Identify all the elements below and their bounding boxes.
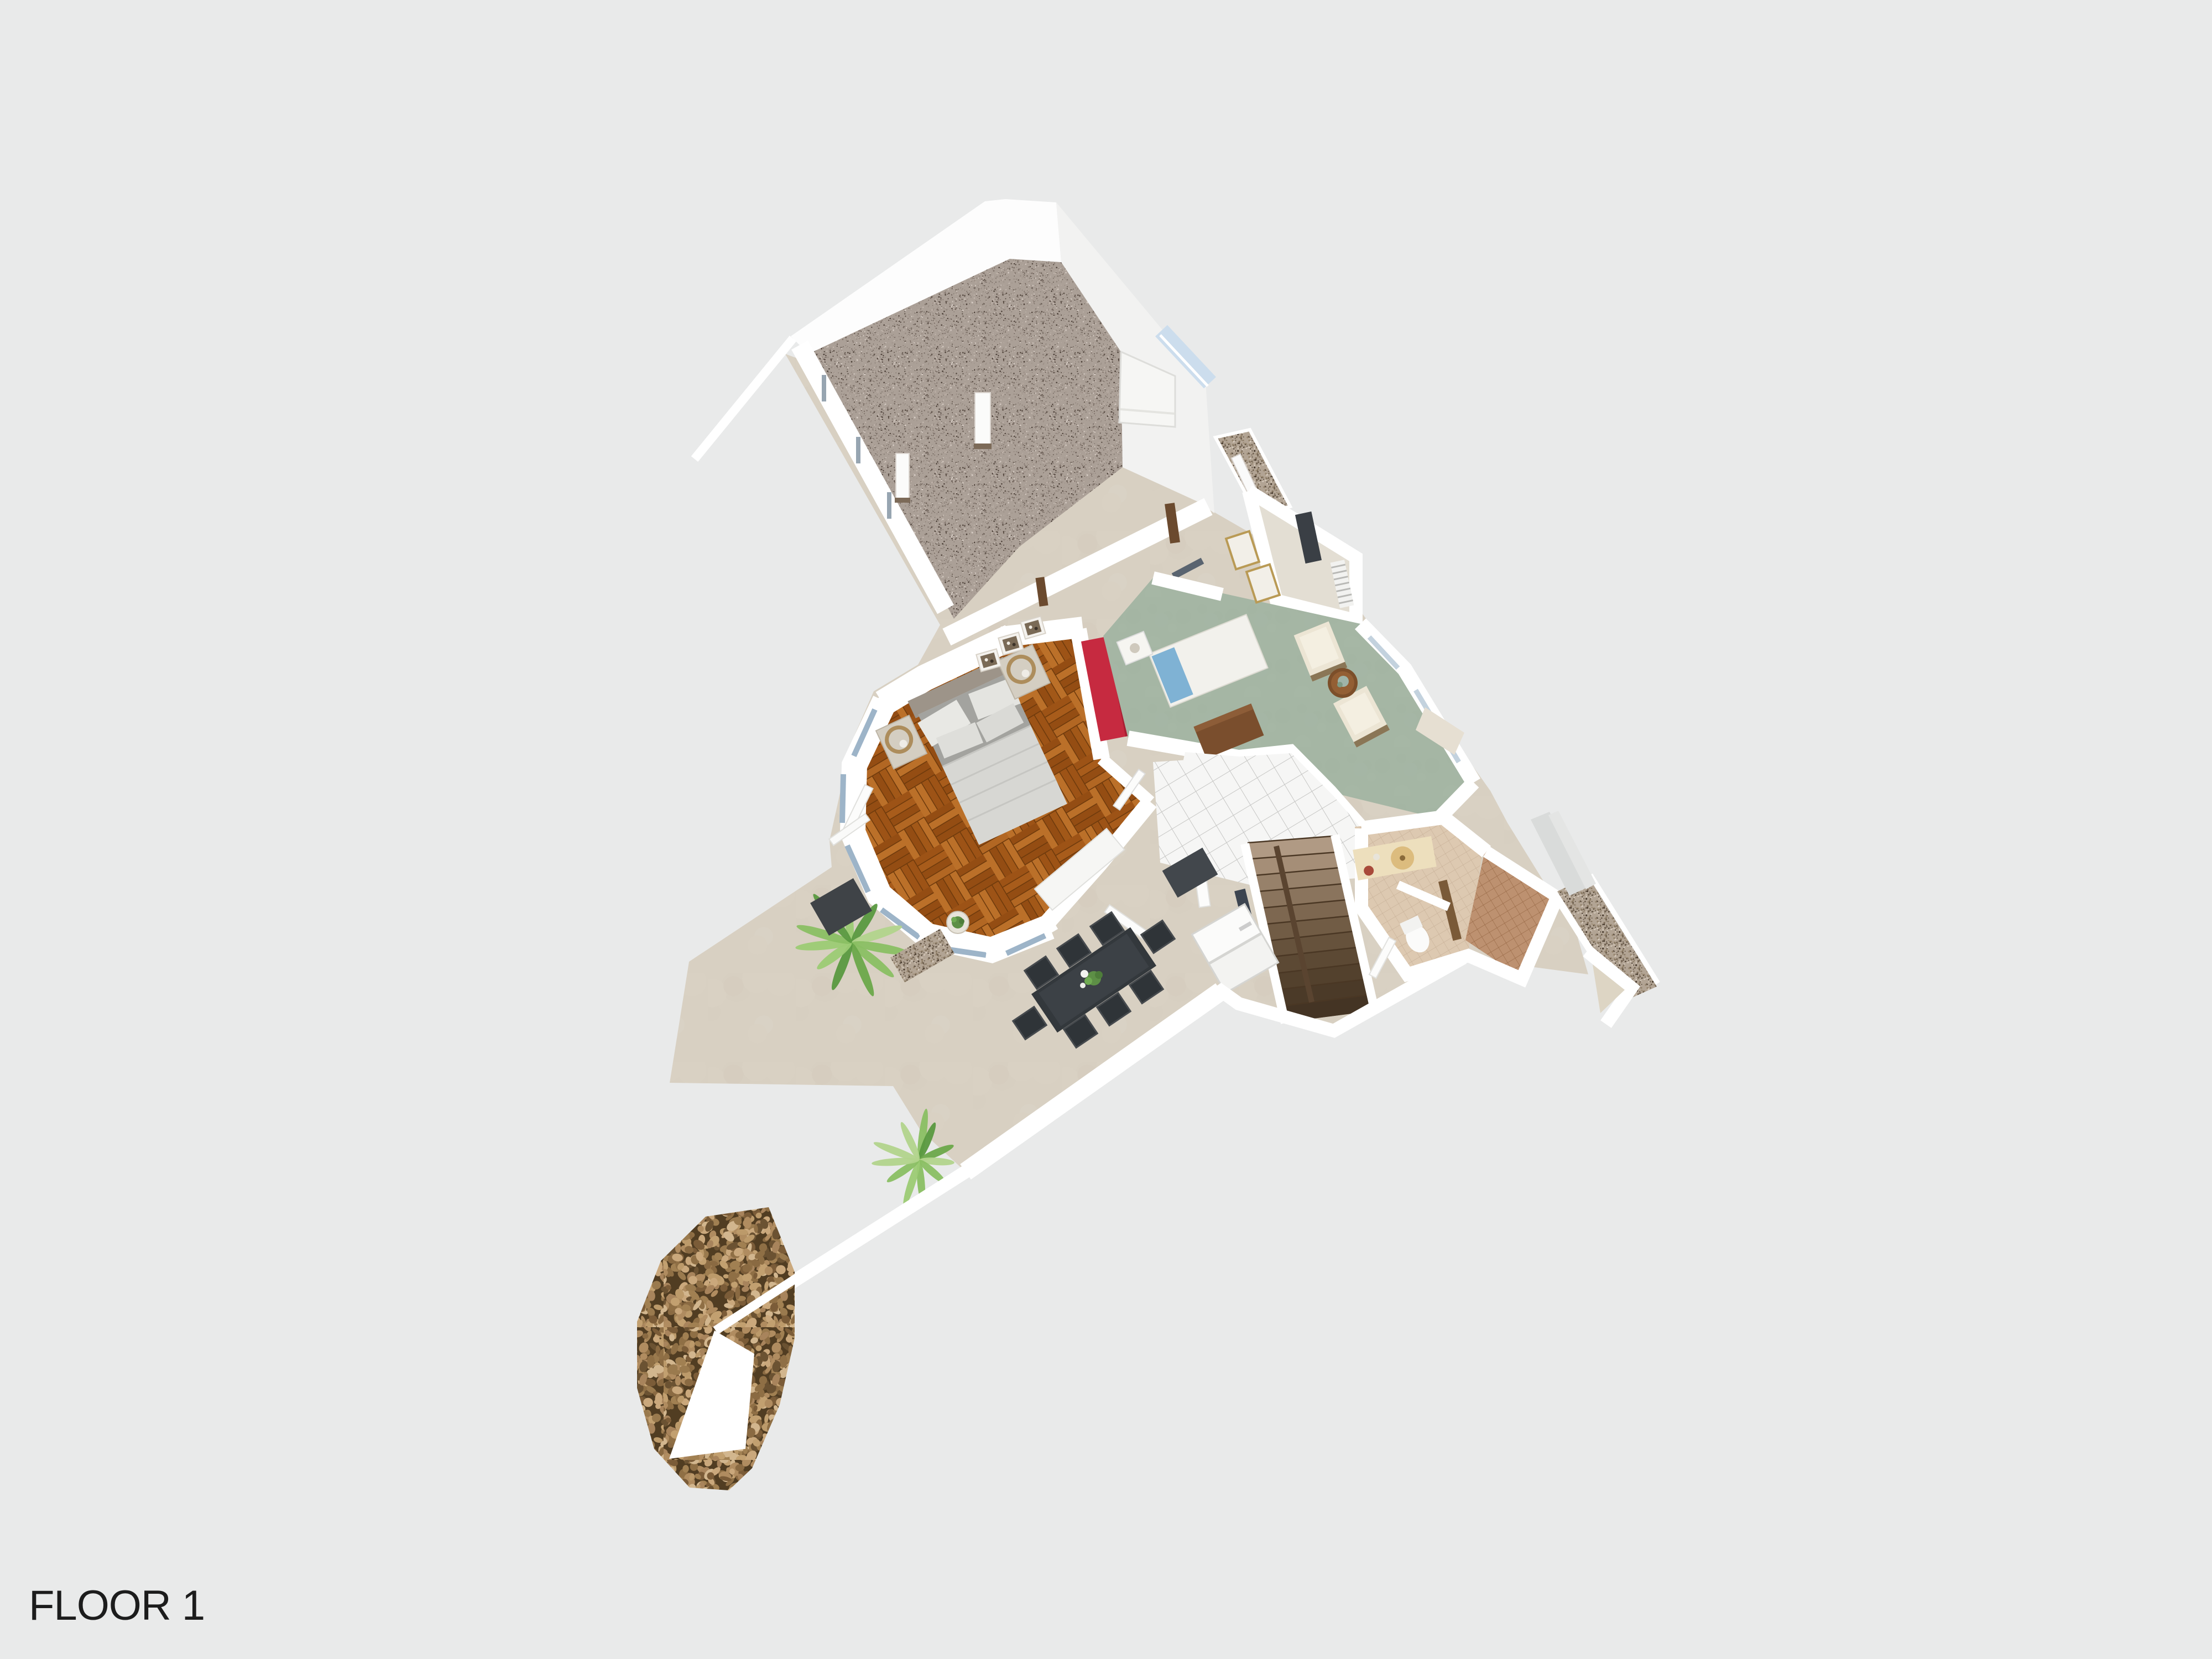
svg-text:FLOOR 1: FLOOR 1 (29, 1582, 205, 1629)
